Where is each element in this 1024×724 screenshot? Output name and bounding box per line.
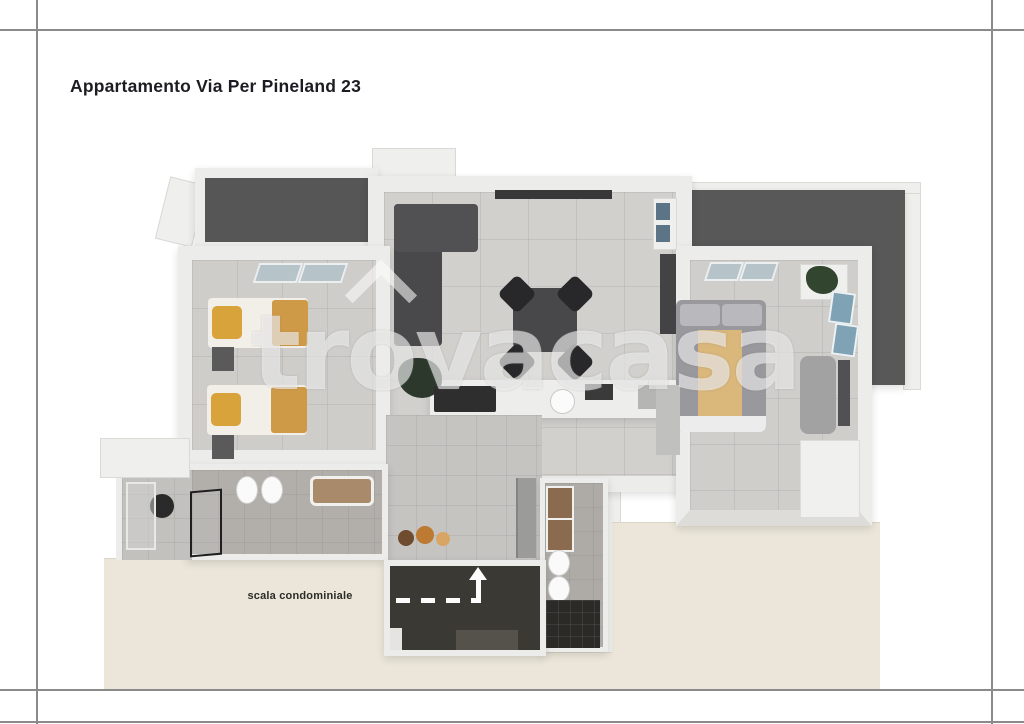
sofa-back xyxy=(394,204,478,252)
shower-tray xyxy=(546,600,600,648)
page-title: Appartamento Via Per Pineland 23 xyxy=(70,76,361,97)
path-arrow-shaft xyxy=(476,579,481,603)
frame-line-bottom-edge xyxy=(0,721,1024,723)
listing-floorplan-screenshot: { "page": { "title": "Appartamento Via P… xyxy=(0,0,1024,724)
skylight-window xyxy=(253,263,303,283)
skylight-window xyxy=(298,263,348,283)
desk xyxy=(800,440,860,518)
frame-line-lower xyxy=(0,689,1024,691)
window-panel xyxy=(653,198,677,250)
bathtub xyxy=(310,476,374,506)
shower-glass xyxy=(190,489,222,558)
toilet xyxy=(548,550,570,576)
terrace-top-left xyxy=(195,168,378,252)
outdoor-landing-mid xyxy=(545,652,612,690)
watermark: trovacasa xyxy=(205,296,845,410)
wall-step xyxy=(100,438,190,478)
window-glass xyxy=(656,225,670,242)
toilet xyxy=(236,476,258,504)
terrace-right-parapet xyxy=(903,184,921,390)
washer xyxy=(546,486,574,520)
path-dashed-line xyxy=(396,598,478,603)
decor-vase xyxy=(436,532,450,546)
nightstand xyxy=(212,435,234,459)
bidet xyxy=(548,576,570,602)
skylight-window xyxy=(739,262,779,281)
watermark-o: o xyxy=(346,296,414,410)
skylight-window xyxy=(704,262,744,281)
dryer xyxy=(546,518,574,552)
outdoor-landing-right xyxy=(612,522,880,690)
bed-sheet-fold xyxy=(676,416,766,432)
stair-wedge xyxy=(390,628,402,650)
frame-line-top xyxy=(0,29,1024,31)
living-window-strip xyxy=(495,190,612,199)
floor-plan: scala condominiale xyxy=(100,140,950,690)
watermark-text: vacasa xyxy=(415,292,799,414)
watermark-text: tr xyxy=(251,292,346,414)
stair-notch xyxy=(456,630,518,650)
hall-cabinet xyxy=(516,478,536,558)
decor-vase xyxy=(416,526,434,544)
frame-line-left xyxy=(36,0,38,724)
stairs-direction-arrow-icon xyxy=(469,567,487,580)
stair-landing-label: scala condominiale xyxy=(200,590,400,602)
decor-vase xyxy=(398,530,414,546)
bidet xyxy=(261,476,283,504)
frame-line-right xyxy=(991,0,993,724)
door-leaf xyxy=(126,482,156,550)
window-glass xyxy=(656,203,670,220)
